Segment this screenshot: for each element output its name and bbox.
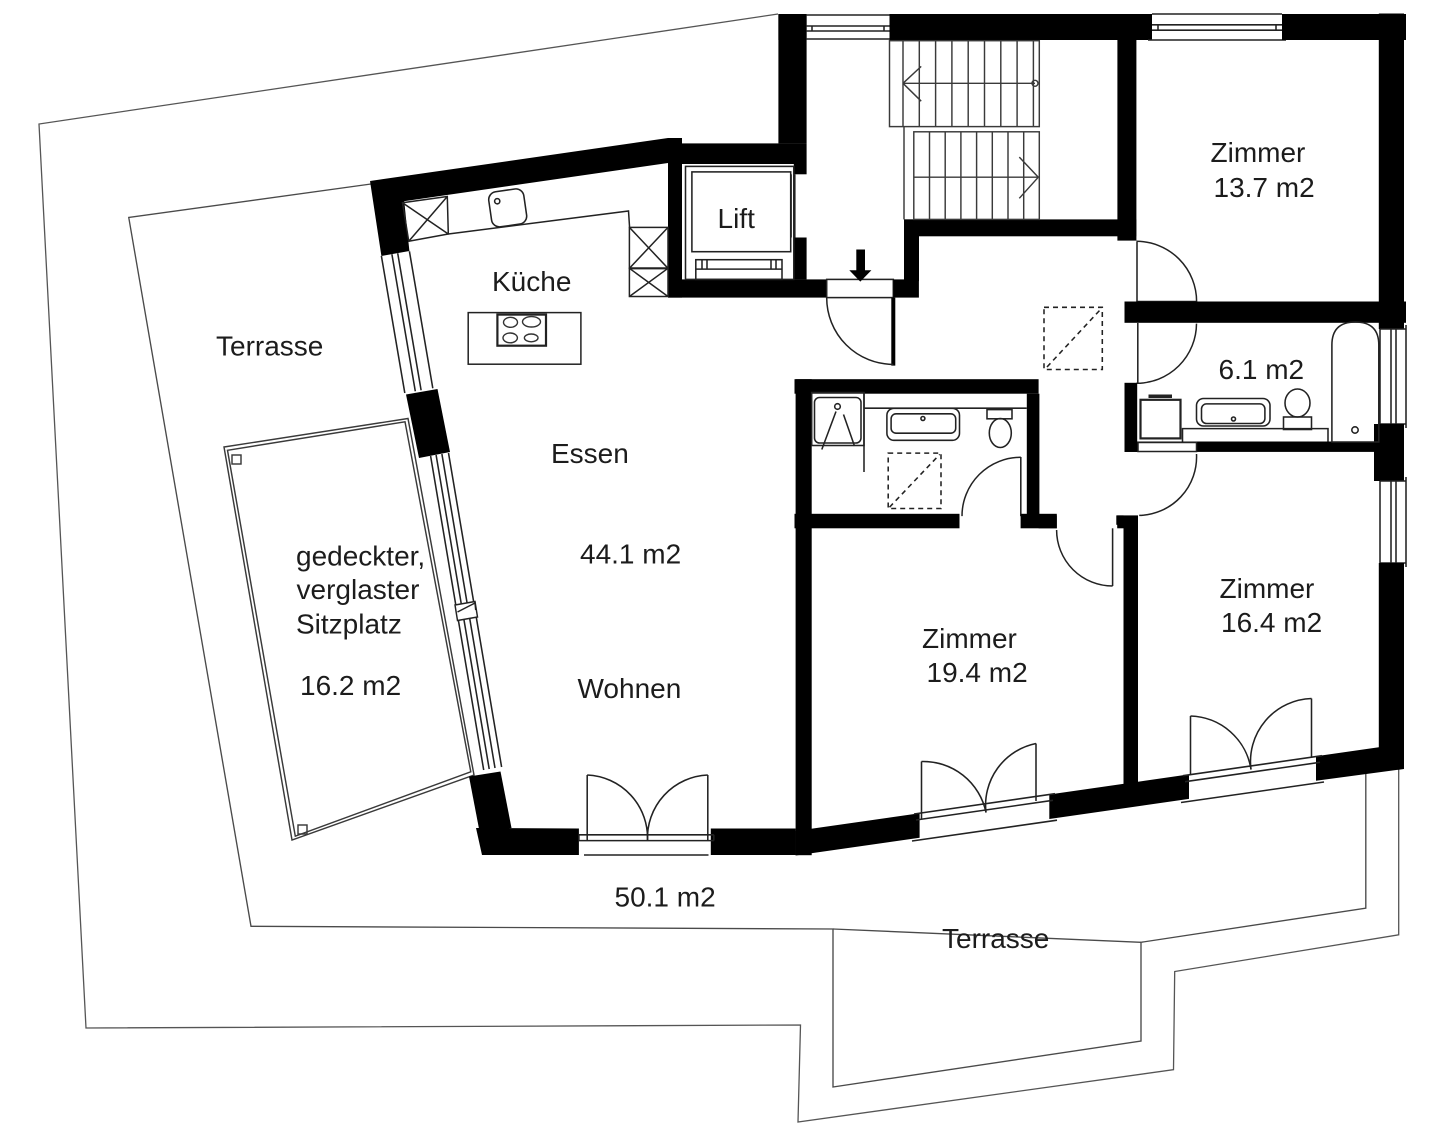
svg-text:Terrasse: Terrasse [216, 331, 323, 362]
svg-text:16.2 m2: 16.2 m2 [300, 670, 401, 701]
svg-text:16.4 m2: 16.4 m2 [1221, 607, 1322, 638]
svg-text:50.1 m2: 50.1 m2 [615, 882, 716, 913]
svg-text:Wohnen: Wohnen [578, 673, 682, 704]
svg-text:gedeckter,: gedeckter, [296, 541, 425, 572]
svg-text:19.4 m2: 19.4 m2 [927, 657, 1028, 688]
svg-text:Küche: Küche [492, 266, 571, 297]
svg-text:13.7 m2: 13.7 m2 [1214, 172, 1315, 203]
svg-text:Sitzplatz: Sitzplatz [296, 609, 402, 640]
svg-text:Zimmer: Zimmer [922, 623, 1017, 654]
svg-text:verglaster: verglaster [297, 574, 420, 605]
svg-text:Lift: Lift [718, 203, 756, 234]
svg-text:Terrasse: Terrasse [942, 923, 1049, 954]
svg-text:Essen: Essen [551, 438, 629, 469]
svg-text:44.1 m2: 44.1 m2 [580, 539, 681, 570]
svg-text:6.1 m2: 6.1 m2 [1219, 354, 1305, 385]
svg-text:Zimmer: Zimmer [1211, 137, 1306, 168]
svg-text:Zimmer: Zimmer [1220, 573, 1315, 604]
